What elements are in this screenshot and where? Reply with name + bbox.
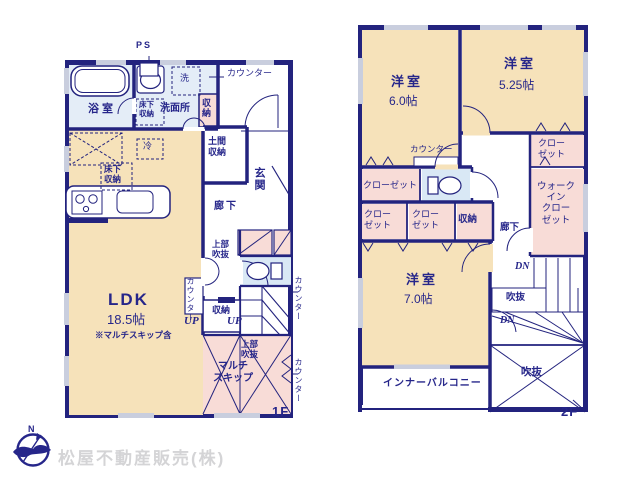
toilet1-tank bbox=[271, 263, 282, 279]
label-void-large: 吹抜 bbox=[521, 366, 542, 378]
label-closet-c: クロー ゼット bbox=[412, 209, 439, 230]
label-bedroom2-size: 5.25帖 bbox=[499, 78, 534, 92]
label-counter-2f: カウンター bbox=[410, 144, 453, 154]
label-closet-a: クロー ゼット bbox=[538, 138, 565, 159]
label-up-a: UP bbox=[184, 315, 199, 328]
label-closet-b: クロー ゼット bbox=[364, 209, 391, 230]
floorplan-linework bbox=[0, 0, 640, 480]
label-closet-wide: クローゼット bbox=[363, 180, 417, 191]
label-bedroom3-size: 7.0帖 bbox=[404, 292, 433, 306]
label-counter-top: カウンター bbox=[227, 68, 272, 79]
label-upper-void-a: 上部 吹抜 bbox=[212, 239, 229, 259]
label-counter-right-b: カウンター bbox=[294, 358, 302, 403]
toilet2-tank bbox=[428, 177, 438, 194]
stair-storage-door bbox=[218, 297, 235, 303]
label-wic: ウォーク イン クロー ゼット bbox=[537, 181, 575, 226]
label-underfloor-b: 床下 収納 bbox=[104, 164, 121, 184]
ldk-room bbox=[69, 129, 203, 415]
label-ldk-name: LDK bbox=[108, 290, 149, 310]
label-ldk-note: ※マルチスキップ含 bbox=[95, 330, 172, 340]
label-counter-right-a: カウンター bbox=[294, 276, 302, 321]
label-underfloor-a: 床下 収納 bbox=[139, 101, 154, 119]
label-inner-balcony: インナーバルコニー bbox=[383, 378, 482, 390]
label-doma-storage: 土間 収納 bbox=[208, 136, 226, 157]
label-washroom: 洗面所 bbox=[160, 103, 190, 115]
label-floor1: 1F bbox=[272, 404, 289, 419]
label-ldk-size: 18.5帖 bbox=[107, 312, 145, 327]
toilet2-bowl bbox=[439, 177, 461, 194]
label-bedroom1-size: 6.0帖 bbox=[389, 94, 418, 108]
label-ps: PS bbox=[136, 40, 152, 51]
label-bedroom2-name: 洋室 bbox=[504, 56, 536, 71]
label-laundry: 洗 bbox=[180, 73, 189, 84]
compass-north-label: N bbox=[28, 424, 35, 434]
label-hall-storage: 収納 bbox=[201, 98, 210, 118]
label-upper-void-b: 上部 吹抜 bbox=[241, 339, 258, 359]
ps-box bbox=[140, 63, 158, 76]
label-bedroom1-name: 洋室 bbox=[391, 74, 423, 89]
label-hallway-2f: 廊下 bbox=[500, 222, 519, 233]
label-dn-a: DN bbox=[515, 261, 529, 273]
label-floor2: 2F bbox=[561, 404, 578, 419]
label-up-b: UP bbox=[227, 315, 242, 328]
label-fridge: 冷 bbox=[143, 141, 152, 152]
label-dn-b: DN bbox=[500, 315, 514, 327]
toilet1-bowl bbox=[247, 263, 269, 280]
label-storage-2f: 収納 bbox=[458, 214, 477, 225]
company-watermark: 松屋不動産販売(株) bbox=[58, 444, 225, 469]
label-bedroom3-name: 洋室 bbox=[406, 272, 438, 287]
label-multi-skip: マルチ スキップ bbox=[213, 361, 253, 385]
label-bath: 浴室 bbox=[88, 103, 116, 116]
label-entrance: 玄関 bbox=[253, 167, 264, 191]
compass-icon bbox=[13, 433, 51, 466]
label-hallway-1f: 廊下 bbox=[214, 201, 238, 213]
label-void-small: 吹抜 bbox=[506, 292, 525, 303]
floorplan-page: PS カウンター 浴室 洗面所 洗 床下 収納 収納 土間 収納 玄関 冷 床下… bbox=[0, 0, 640, 480]
